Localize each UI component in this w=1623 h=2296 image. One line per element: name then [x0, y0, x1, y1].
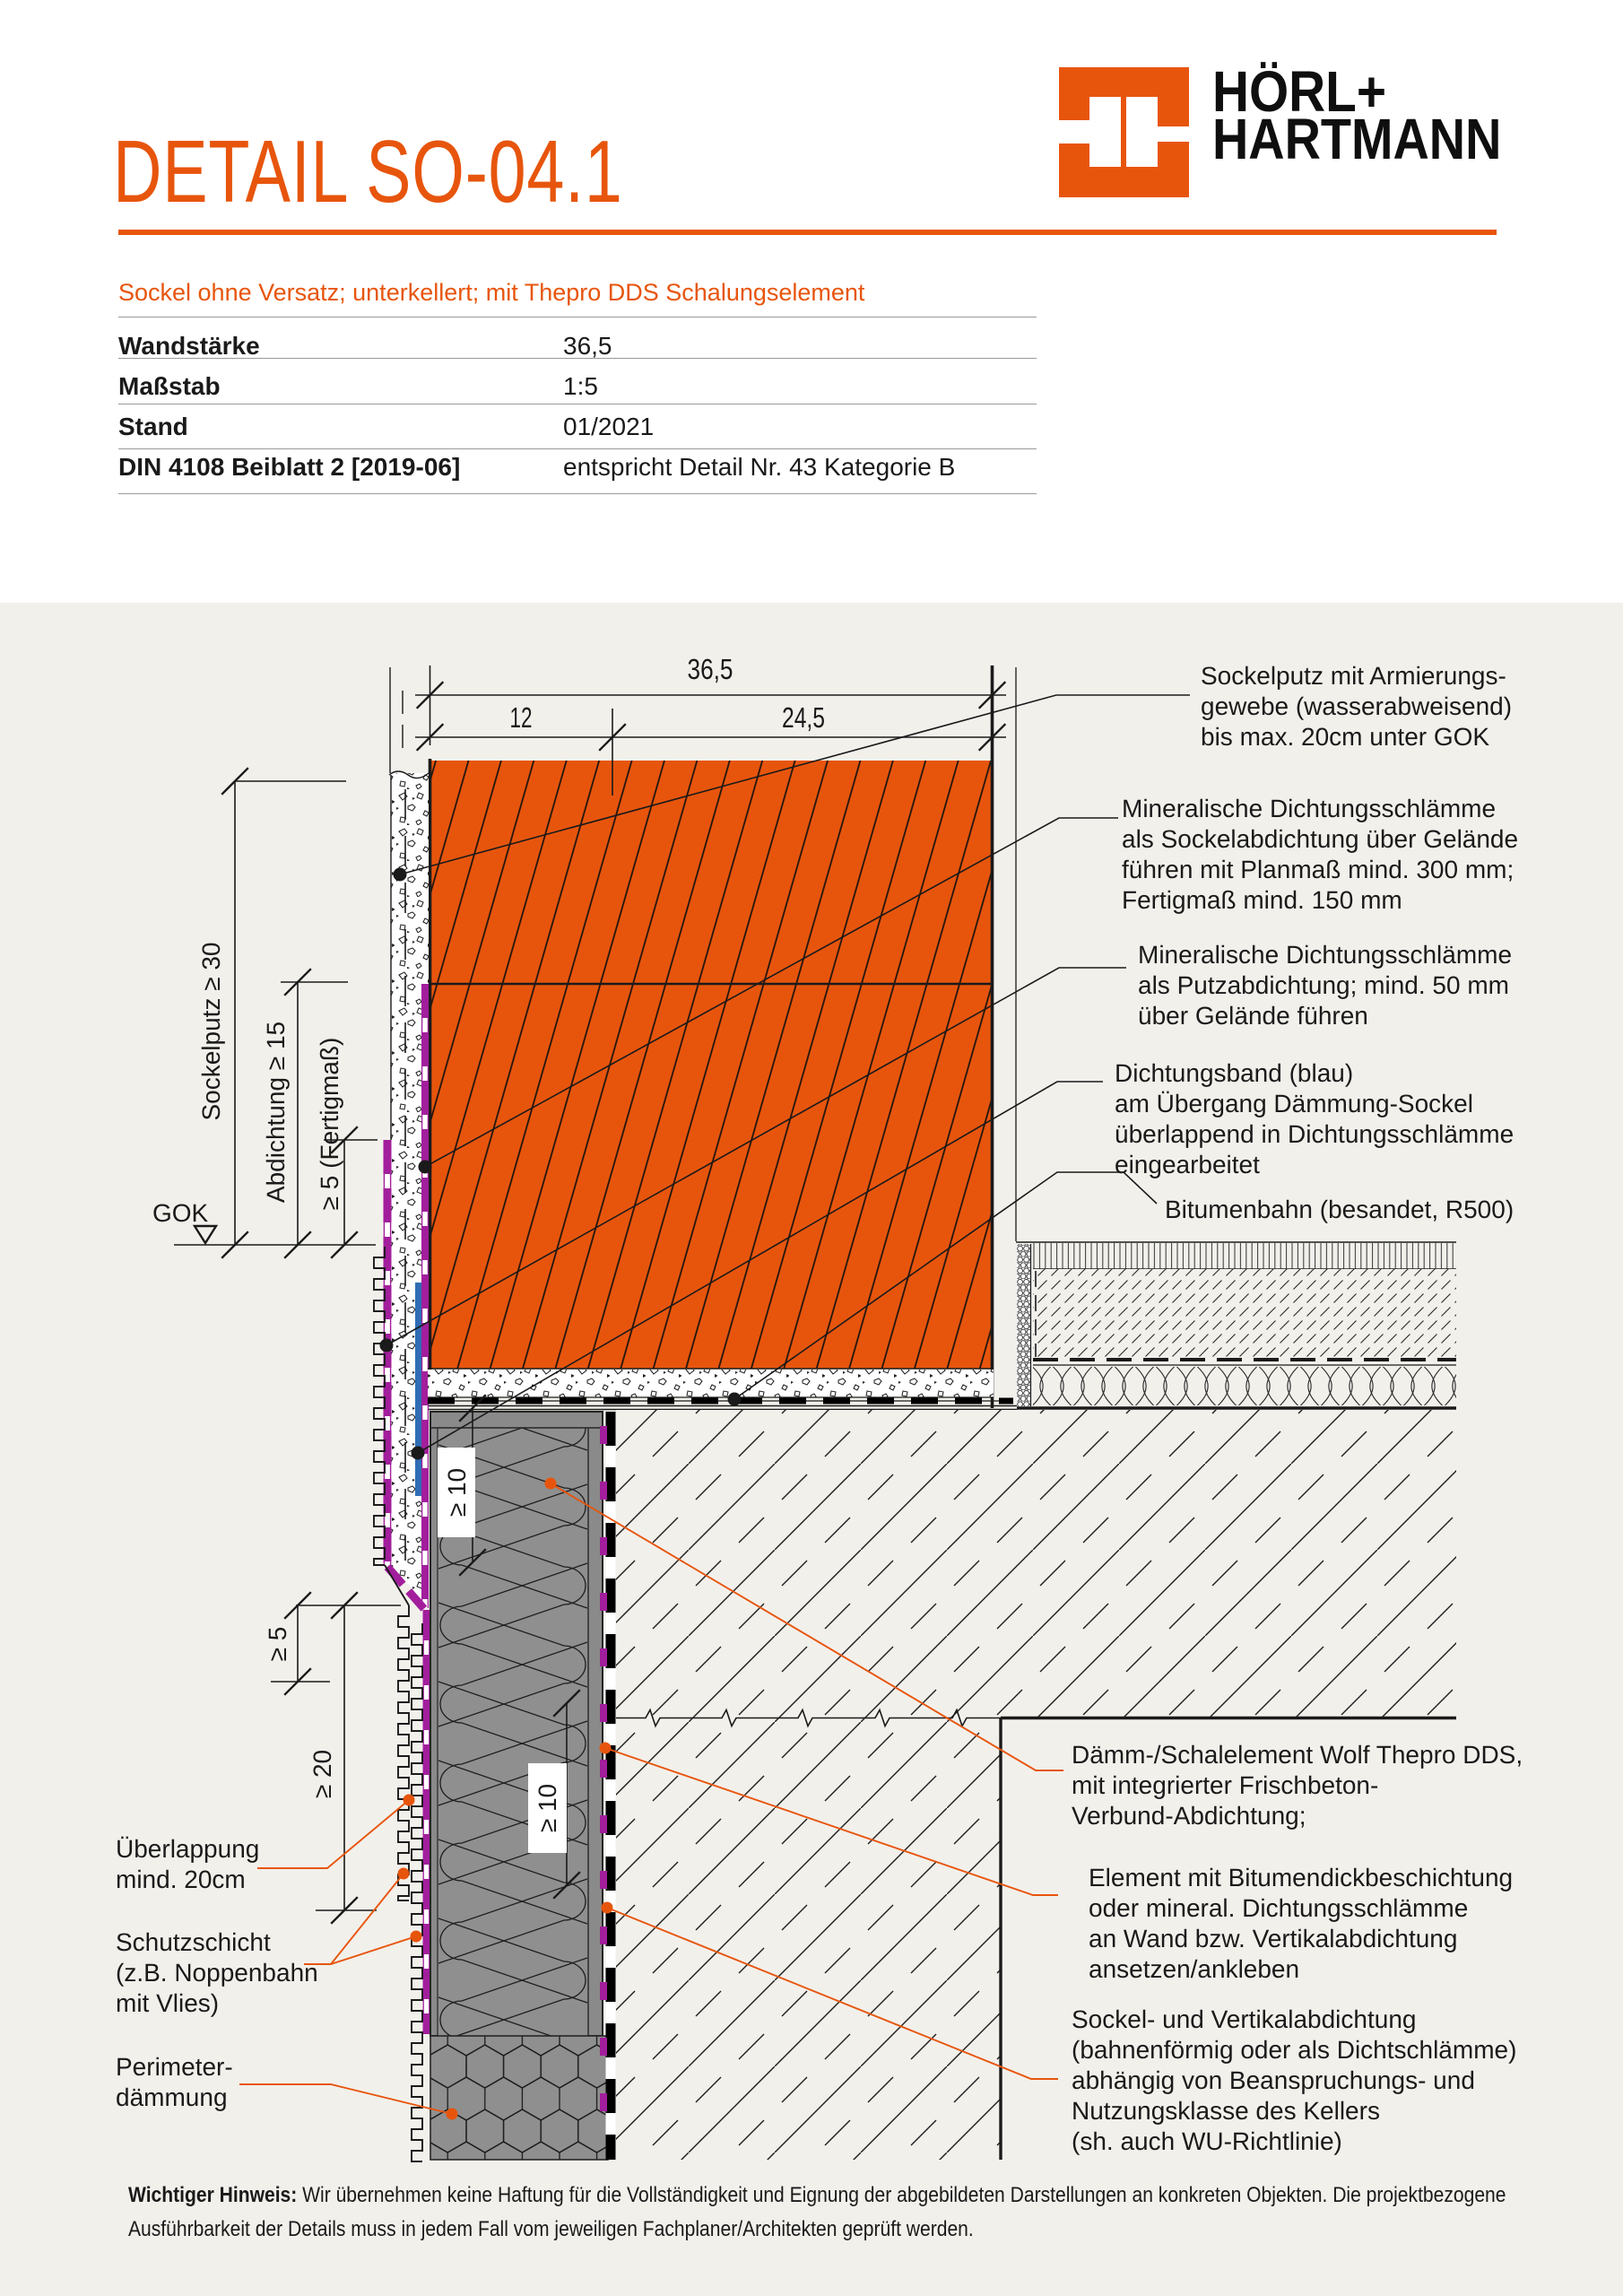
svg-text:Nutzungsklasse des Kellers: Nutzungsklasse des Kellers	[1072, 2097, 1380, 2125]
svg-text:(bahnenförmig oder als Dichtsc: (bahnenförmig oder als Dichtschlämme)	[1072, 2036, 1516, 2064]
svg-text:an Wand bzw. Vertikalabdichtun: an Wand bzw. Vertikalabdichtung	[1089, 1925, 1457, 1952]
svg-text:führen mit Planmaß mind. 300 m: führen mit Planmaß mind. 300 mm;	[1122, 856, 1514, 883]
svg-text:Verbund-Abdichtung;: Verbund-Abdichtung;	[1072, 1802, 1306, 1830]
svg-text:ansetzen/ankleben: ansetzen/ankleben	[1089, 1955, 1299, 1983]
svg-text:Mineralische Dichtungsschlämme: Mineralische Dichtungsschlämme	[1138, 941, 1512, 969]
svg-text:Sockelputz mit Armierungs-: Sockelputz mit Armierungs-	[1201, 662, 1506, 690]
svg-text:Fertigmaß mind. 150 mm: Fertigmaß mind. 150 mm	[1122, 886, 1402, 914]
svg-text:eingearbeitet: eingearbeitet	[1115, 1151, 1260, 1178]
svg-text:Element mit Bitumendickbeschic: Element mit Bitumendickbeschichtung	[1089, 1864, 1513, 1892]
svg-text:Sockelputz ≥ 30: Sockelputz ≥ 30	[197, 942, 225, 1120]
svg-text:Perimeter-: Perimeter-	[116, 2053, 233, 2081]
svg-text:Überlappung: Überlappung	[116, 1835, 259, 1863]
svg-text:am Übergang Dämmung-Sockel: am Übergang Dämmung-Sockel	[1115, 1090, 1473, 1118]
svg-text:12: 12	[510, 701, 533, 734]
svg-text:oder mineral. Dichtungsschlämm: oder mineral. Dichtungsschlämme	[1089, 1894, 1468, 1922]
svg-text:36,5: 36,5	[688, 653, 733, 685]
svg-text:Dichtungsband (blau): Dichtungsband (blau)	[1115, 1059, 1353, 1087]
svg-text:als Sockelabdichtung über Gelä: als Sockelabdichtung über Gelände	[1122, 825, 1518, 853]
svg-text:über Gelände führen: über Gelände führen	[1138, 1002, 1368, 1030]
svg-text:Schutzschicht: Schutzschicht	[116, 1928, 271, 1956]
svg-text:gewebe (wasserabweisend): gewebe (wasserabweisend)	[1201, 692, 1512, 720]
svg-text:bis max. 20cm unter GOK: bis max. 20cm unter GOK	[1201, 723, 1489, 751]
svg-text:Dämm-/Schalelement Wolf Thepro: Dämm-/Schalelement Wolf Thepro DDS,	[1072, 1741, 1523, 1769]
svg-text:24,5: 24,5	[782, 701, 825, 734]
svg-text:Sockel- und Vertikalabdichtung: Sockel- und Vertikalabdichtung	[1072, 2005, 1416, 2033]
svg-text:≥ 20: ≥ 20	[308, 1750, 336, 1798]
svg-text:Abdichtung ≥ 15: Abdichtung ≥ 15	[262, 1022, 290, 1203]
svg-text:überlappend in Dichtungsschläm: überlappend in Dichtungsschlämme	[1115, 1120, 1514, 1148]
svg-text:mind. 20cm: mind. 20cm	[116, 1865, 246, 1893]
svg-text:(z.B. Noppenbahn: (z.B. Noppenbahn	[116, 1959, 318, 1987]
svg-text:≥ 10: ≥ 10	[443, 1468, 471, 1517]
svg-text:Mineralische Dichtungsschlämme: Mineralische Dichtungsschlämme	[1122, 795, 1496, 822]
svg-text:dämmung: dämmung	[116, 2083, 228, 2111]
svg-text:(sh. auch WU-Richtlinie): (sh. auch WU-Richtlinie)	[1072, 2127, 1342, 2155]
svg-text:abhängig von Beanspruchungs- u: abhängig von Beanspruchungs- und	[1072, 2066, 1475, 2094]
svg-text:mit integrierter Frischbeton-: mit integrierter Frischbeton-	[1072, 1771, 1378, 1799]
svg-text:mit Vlies): mit Vlies)	[116, 1989, 219, 2017]
svg-text:≥ 5 (Fertigmaß): ≥ 5 (Fertigmaß)	[316, 1038, 343, 1211]
svg-text:≥ 5: ≥ 5	[264, 1627, 291, 1662]
svg-text:≥ 10: ≥ 10	[534, 1784, 561, 1832]
svg-text:als Putzabdichtung; mind. 50 m: als Putzabdichtung; mind. 50 mm	[1138, 971, 1509, 999]
svg-text:Bitumenbahn (besandet, R500): Bitumenbahn (besandet, R500)	[1165, 1196, 1514, 1223]
svg-text:GOK: GOK	[152, 1199, 209, 1227]
